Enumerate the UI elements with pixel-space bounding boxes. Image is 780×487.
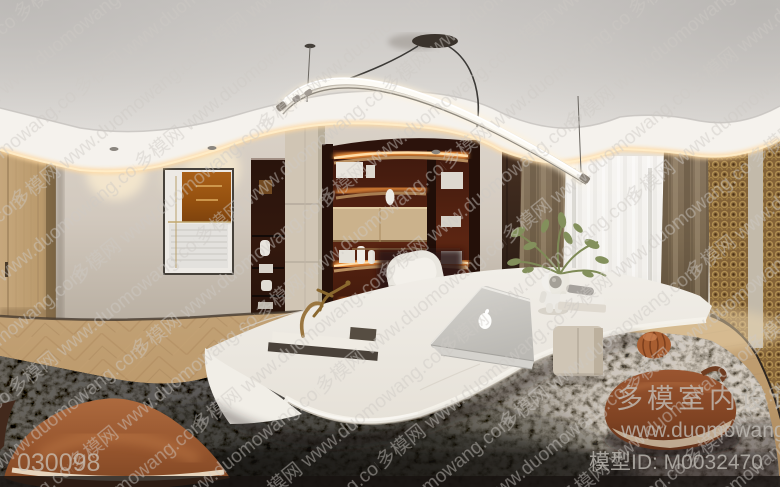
svg-text:030098: 030098 [17,449,100,477]
svg-text:多模室内设计: 多模室内设计 [616,384,780,414]
svg-text:模型ID: M0032470: 模型ID: M0032470 [589,451,763,474]
svg-text:www.duomowang.com: www.duomowang.com [620,419,780,442]
